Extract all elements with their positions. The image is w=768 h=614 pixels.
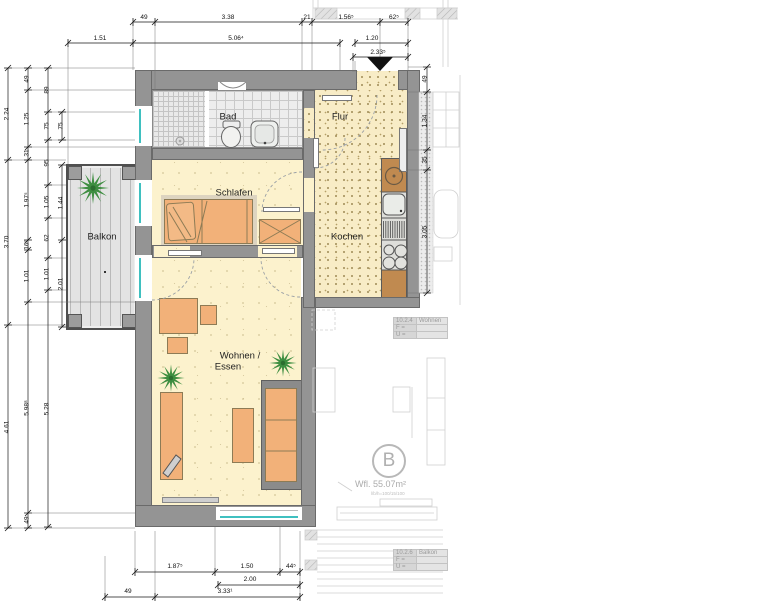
dim-label: 1.01 — [24, 270, 31, 283]
dim-label: 95 — [44, 159, 51, 166]
door-opening-bad — [304, 108, 314, 138]
dim-label: 1.56⁵ — [338, 14, 353, 21]
schlafen-door-leaf — [263, 207, 300, 212]
wall-kitchen-bottom — [301, 297, 420, 308]
window-bad-opening — [135, 106, 152, 146]
dim-label: 16⁷ — [24, 240, 31, 250]
balcony-post — [68, 166, 82, 180]
dim-label: 1.97⁵ — [24, 192, 31, 207]
balcony-door-schlafen-glazing — [139, 183, 141, 223]
sideboard — [160, 392, 183, 480]
wall-top-left — [135, 70, 357, 90]
window-wohnen-west-glazing — [139, 258, 141, 298]
wardrobe — [259, 219, 301, 244]
dim-label: 62 — [44, 234, 51, 241]
window-wohnen-south-glazing — [220, 516, 298, 518]
room-label-wohnen-1: Wohnen / — [220, 351, 261, 362]
dim-label: 49 — [24, 75, 31, 82]
dim-label: 31 — [24, 149, 31, 156]
legend-table-wohnen: 10.2.4 Wohnen F = U = — [393, 317, 448, 339]
dim-label: 1.51 — [94, 35, 107, 42]
wall-bad-schlafen — [152, 148, 303, 160]
balcony-post — [122, 166, 136, 180]
dim-label: 1.20 — [366, 35, 379, 42]
room-label-flur: Flur — [332, 112, 348, 123]
dim-label: 2.01 — [58, 278, 65, 291]
unit-badge: B — [372, 444, 406, 478]
bed — [164, 199, 253, 244]
balcony-post — [122, 314, 136, 328]
coffee-table — [232, 408, 254, 463]
legend-row: F = — [394, 325, 417, 332]
wall-wohnen-right — [301, 297, 316, 527]
window-bad-glazing — [139, 109, 141, 143]
kitchen-worktop-lower — [382, 270, 406, 297]
legend-row: U = — [394, 332, 417, 339]
shower-divider — [205, 91, 209, 147]
legend-name: Wohnen — [417, 318, 448, 325]
room-label-schlafen: Schlafen — [216, 188, 253, 199]
entrance-opening — [357, 71, 398, 89]
legend-code: 10.2.4 — [394, 318, 417, 325]
wall-shelf — [162, 497, 219, 503]
legend-code: 10.2.6 — [394, 550, 417, 557]
legend-name: Balkon — [417, 550, 448, 557]
dim-label: 3.05 — [422, 226, 429, 239]
room-label-kochen: Kochen — [331, 232, 363, 243]
bad-door-leaf — [313, 138, 319, 168]
entrance-door-leaf — [322, 95, 352, 101]
dim-label: 75 — [44, 122, 51, 129]
window-wohnen-west-opening — [135, 255, 152, 301]
flur-radiator — [399, 128, 407, 172]
legend-row: F = — [394, 557, 417, 564]
dim-label: 1.44 — [58, 197, 65, 210]
floorplan-canvas: Bad Flur Schlafen Kochen Balkon Wohnen /… — [0, 0, 768, 614]
wohnen-door-leaf-left — [168, 250, 202, 256]
dim-label: 5.06⁴ — [228, 35, 243, 42]
dim-label: 2.00 — [244, 576, 257, 583]
dim-label: 5.98⁸ — [24, 400, 31, 415]
wohnen-door-leaf-right — [262, 248, 295, 254]
dim-label: 1.25 — [24, 113, 31, 126]
room-label-balkon: Balkon — [87, 232, 116, 243]
balcony-door-schlafen-opening — [135, 180, 152, 226]
dim-label: 75 — [58, 122, 65, 129]
area-label: Wfl. 55.07m² — [355, 479, 406, 489]
chair — [200, 305, 217, 325]
dim-label: 4.61 — [4, 421, 11, 434]
dim-label: 1.01 — [44, 268, 51, 281]
dim-label: 5.28 — [44, 403, 51, 416]
dim-label: 89 — [44, 86, 51, 93]
dim-label: 2.24 — [4, 108, 11, 121]
dim-label: 49 — [24, 516, 31, 523]
dim-label: 21 — [303, 14, 310, 21]
window-wohnen-south-frame — [220, 510, 298, 511]
floor-shower — [153, 91, 207, 147]
balcony-dot — [104, 271, 106, 273]
dim-label: 44⁵ — [286, 563, 296, 570]
dim-label: 3.38 — [222, 14, 235, 21]
dim-label: 49 — [422, 75, 429, 82]
dim-label: 49 — [140, 14, 147, 21]
legend-row: U = — [394, 564, 417, 571]
window-wohnen-south-opening — [216, 507, 302, 520]
balcony-post — [68, 314, 82, 328]
dim-label: 3.33¹ — [218, 588, 233, 595]
sofa-cushions — [265, 388, 297, 482]
dining-table — [159, 298, 198, 334]
dim-label: 49 — [124, 588, 131, 595]
bad-wall-niche — [218, 82, 246, 90]
room-label-wohnen-2: Essen — [215, 362, 241, 373]
dim-label: 62⁵ — [389, 14, 399, 21]
dim-label: 1.34 — [422, 115, 429, 128]
door-opening-schlafen — [304, 178, 314, 212]
legend-table-balkon: 10.2.6 Balkon F = U = — [393, 549, 448, 571]
dim-label: 2.33⁵ — [370, 49, 385, 56]
dim-label: 35 — [422, 156, 429, 163]
chair — [167, 337, 188, 354]
dim-label: 3.70 — [4, 236, 11, 249]
balcony-floor — [70, 168, 134, 326]
dim-label: 1.05 — [44, 196, 51, 209]
dim-label: 1.50 — [241, 563, 254, 570]
room-label-bad: Bad — [220, 112, 237, 123]
size-note: l/b/h=100/15/100 — [371, 491, 405, 496]
entrance-arrow-icon — [367, 57, 393, 71]
wall-right — [407, 70, 420, 308]
dim-label: 1.87⁵ — [167, 563, 182, 570]
